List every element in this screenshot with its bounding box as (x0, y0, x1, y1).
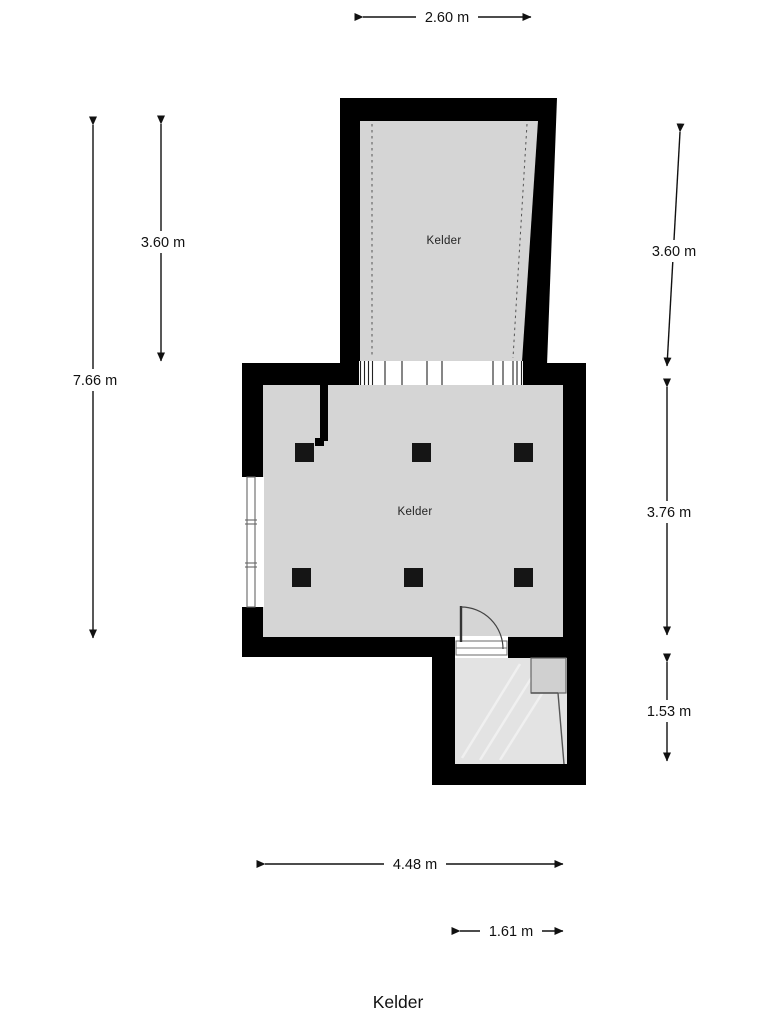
dimension-left-upper: 3.60 m (132, 124, 194, 361)
dimension-bottom-main: 4.48 m (265, 853, 563, 875)
dimension-label: 7.66 m (73, 373, 117, 389)
column (514, 443, 533, 462)
dimension-left-total: 7.66 m (64, 125, 126, 638)
dimension-label: 3.60 m (652, 244, 696, 260)
dimension-top-width: 2.60 m (363, 6, 531, 28)
dimension-label: 3.76 m (647, 505, 691, 521)
window-frame (247, 477, 255, 607)
column (292, 568, 311, 587)
dimension-label: 2.60 m (425, 10, 469, 26)
interior-wall-stub-foot (315, 438, 324, 446)
upper-room-label: Kelder (426, 235, 461, 247)
column (295, 443, 314, 462)
column (412, 443, 431, 462)
page-title: Kelder (373, 992, 424, 1012)
dimension-label: 3.60 m (141, 235, 185, 251)
dimension-right-middle: 3.76 m (638, 387, 700, 635)
dimension-label: 1.53 m (647, 704, 691, 720)
dimension-right-upper: 3.60 m (643, 132, 705, 366)
interior-wall-stub (320, 385, 328, 441)
dimension-label: 4.48 m (393, 857, 437, 873)
floorplan-page: Kelder Kelder 2.60 m 7.66 m 3.60 m 3.60 … (0, 0, 768, 1024)
stair-landing-step (531, 658, 566, 693)
column (404, 568, 423, 587)
stairs-opening (359, 361, 523, 385)
dimension-right-lower: 1.53 m (638, 662, 700, 761)
dimension-bottom-lower: 1.61 m (460, 920, 563, 942)
floorplan-canvas: Kelder Kelder 2.60 m 7.66 m 3.60 m 3.60 … (0, 0, 768, 1024)
dimension-label: 1.61 m (489, 924, 533, 940)
main-room-label: Kelder (397, 506, 432, 518)
column (514, 568, 533, 587)
